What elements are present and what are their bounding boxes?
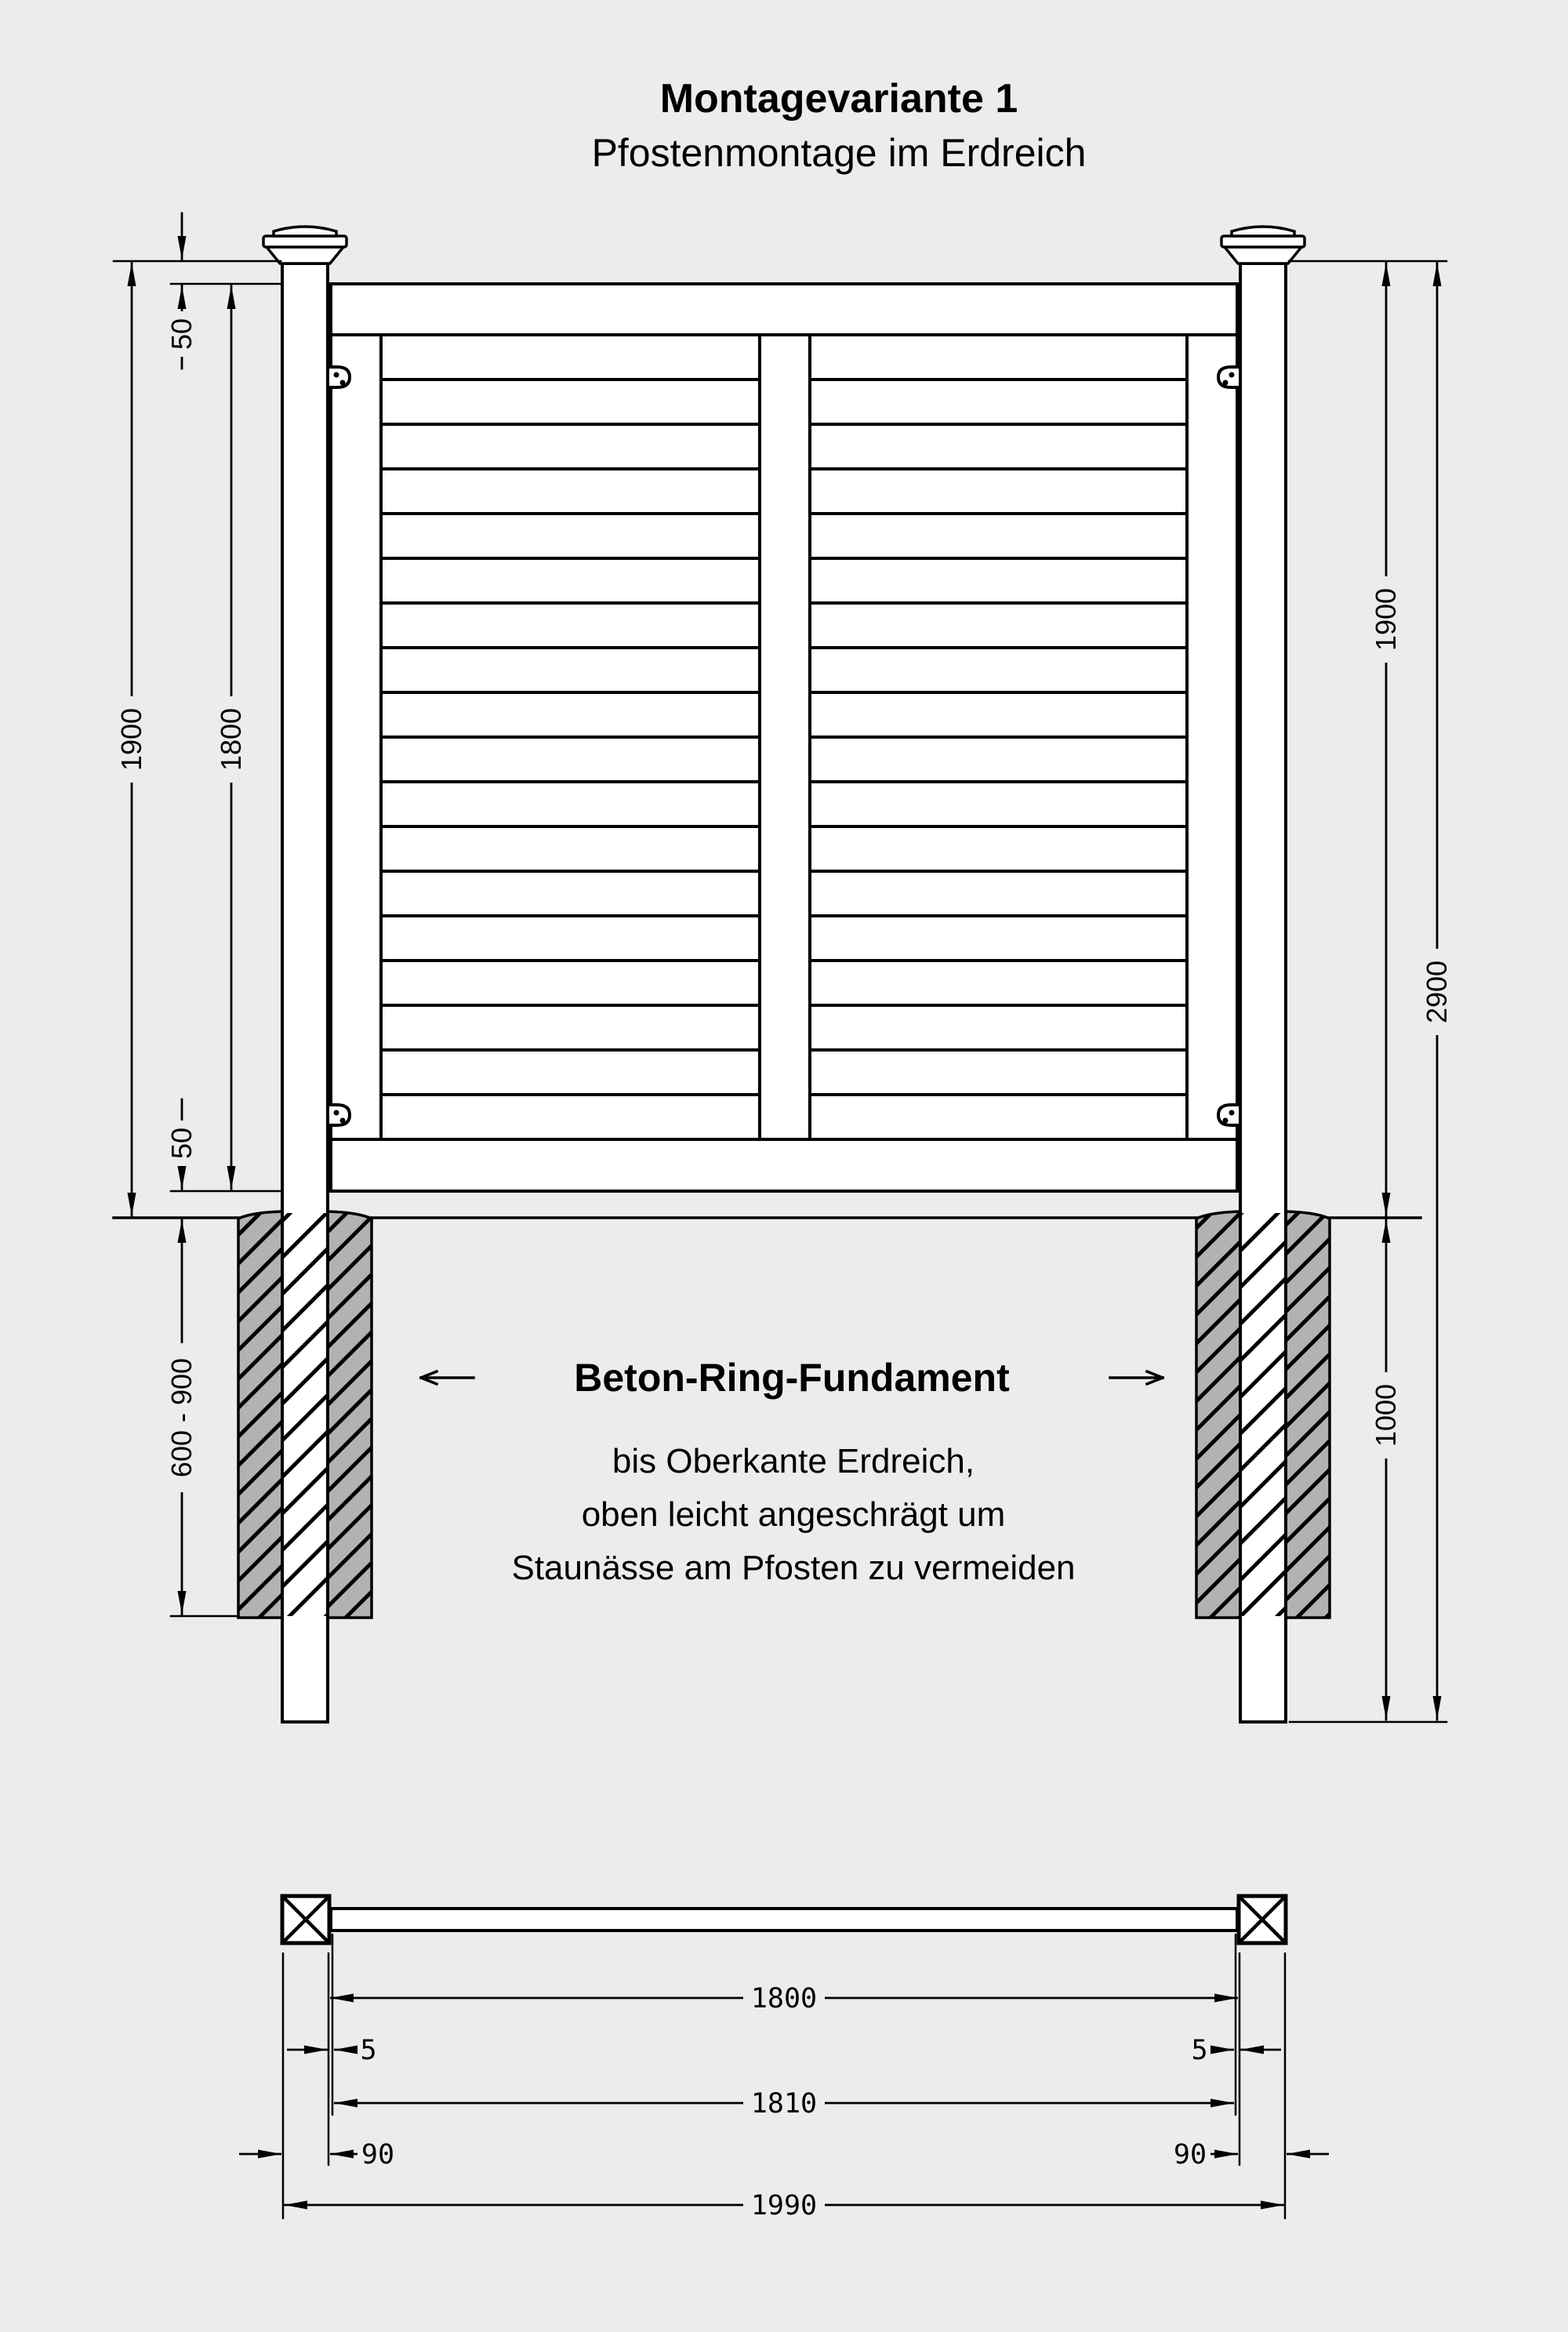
front-view: 1900 1800 50 50 600 - 900 1900 2900 1000… — [114, 213, 1454, 1722]
clip-right-bottom — [1218, 1105, 1240, 1125]
foundation-note-line3: Staunässe am Pfosten zu vermeiden — [511, 1549, 1075, 1587]
plan-dimension-labels: 1800 5 5 1810 90 90 1990 — [360, 1982, 1207, 2221]
right-post-cap — [1221, 227, 1305, 263]
page-subtitle: Pfostenmontage im Erdreich — [592, 131, 1087, 175]
clip-right-top — [1218, 367, 1240, 387]
clip-left-top — [328, 367, 350, 387]
dim-label-post-height-left: 1900 — [115, 708, 147, 771]
plan-left-post — [282, 1896, 329, 1943]
page-title: Montagevariante 1 — [660, 76, 1018, 122]
plan-right-post — [1239, 1896, 1286, 1943]
dim-label-panel-length: 1810 — [751, 2088, 817, 2120]
drawing-sheet: Montagevariante 1 Pfostenmontage im Erdr… — [0, 0, 1568, 2332]
title-block: Montagevariante 1 Pfostenmontage im Erdr… — [592, 76, 1087, 175]
dim-label-foundation-depth: 600 - 900 — [165, 1358, 198, 1477]
dim-label-overlap-left: 5 — [360, 2035, 376, 2066]
dim-label-ground-clearance: 50 — [165, 1128, 198, 1159]
dim-label-clear-span: 1800 — [751, 1983, 817, 2014]
left-post-cap — [263, 227, 347, 263]
dim-label-cap-offset-top: 50 — [165, 318, 198, 350]
plan-view: 1800 5 5 1810 90 90 1990 — [239, 1896, 1329, 2221]
arrow-right-icon — [1110, 1371, 1163, 1384]
foundation-note-line2: oben leicht angeschrägt um — [582, 1495, 1006, 1534]
dim-label-post-width-left: 90 — [361, 2139, 394, 2170]
foundation-note-line1: bis Oberkante Erdreich, — [612, 1442, 975, 1480]
technical-drawing: Montagevariante 1 Pfostenmontage im Erdr… — [0, 0, 1568, 2332]
dim-label-panel-height: 1800 — [215, 708, 247, 771]
foundation-note: Beton-Ring-Fundament bis Oberkante Erdre… — [421, 1356, 1163, 1587]
dim-label-overlap-right: 5 — [1191, 2035, 1207, 2066]
left-post-buried-hatch — [284, 1213, 326, 1616]
arrow-left-icon — [421, 1371, 474, 1384]
dim-label-buried-length: 1000 — [1370, 1384, 1402, 1447]
fence-panel — [331, 284, 1237, 1191]
foundation-note-heading: Beton-Ring-Fundament — [574, 1356, 1010, 1400]
clip-left-bottom — [328, 1105, 350, 1125]
dim-label-overall-width: 1990 — [751, 2190, 817, 2221]
dim-label-post-width-right: 90 — [1174, 2139, 1207, 2170]
plan-panel — [331, 1909, 1237, 1931]
dim-label-total-height: 2900 — [1421, 961, 1453, 1023]
extension-lines-plan — [283, 1934, 1285, 2219]
right-post-buried-hatch — [1242, 1213, 1284, 1616]
dim-label-post-height-right: 1900 — [1370, 588, 1402, 651]
